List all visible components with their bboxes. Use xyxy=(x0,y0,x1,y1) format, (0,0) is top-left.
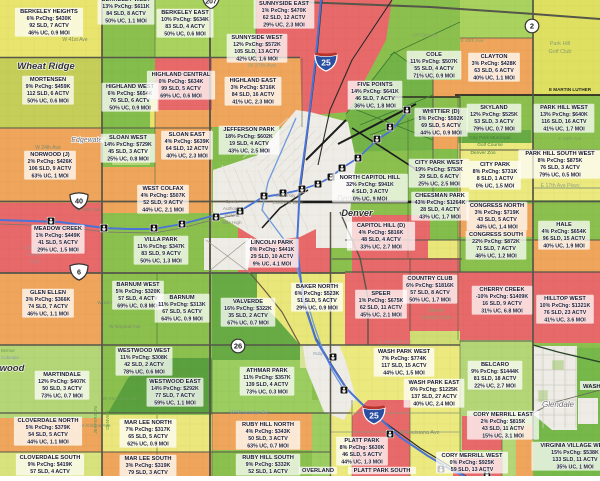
svg-text:12% PxChg: $525K: 12% PxChg: $525K xyxy=(470,112,518,118)
svg-text:76 SLD, 6 ACTV: 76 SLD, 6 ACTV xyxy=(110,98,150,104)
svg-text:52 SLD, 9 ACTV: 52 SLD, 9 ACTV xyxy=(143,200,183,206)
svg-text:CITY PARK WEST: CITY PARK WEST xyxy=(415,160,464,166)
svg-text:63% UC, 0.7 MOI: 63% UC, 0.7 MOI xyxy=(247,443,289,449)
svg-text:43% UC, 2.5 MOI: 43% UC, 2.5 MOI xyxy=(228,148,270,154)
svg-text:40% UC, 1.1 MOI: 40% UC, 1.1 MOI xyxy=(473,75,515,81)
svg-text:35% UC, 1 MOI: 35% UC, 1 MOI xyxy=(556,464,594,470)
svg-text:MORTENSEN: MORTENSEN xyxy=(30,77,66,83)
svg-text:RUBY HILL SOUTH: RUBY HILL SOUTH xyxy=(242,455,294,461)
svg-text:BERKELEY EAST: BERKELEY EAST xyxy=(161,10,209,16)
svg-text:22% PxChg: $872K: 22% PxChg: $872K xyxy=(472,239,520,245)
svg-text:5% PxChg: $379K: 5% PxChg: $379K xyxy=(26,425,71,431)
svg-text:44% UC, 1.5 MOI: 44% UC, 1.5 MOI xyxy=(383,370,425,376)
svg-text:W 24th Ave: W 24th Ave xyxy=(35,145,61,151)
svg-text:SKYLAND: SKYLAND xyxy=(480,105,508,111)
svg-text:13% PxChg: $611K: 13% PxChg: $611K xyxy=(102,4,150,10)
svg-text:7% PxChg: $317K: 7% PxChg: $317K xyxy=(126,427,171,433)
svg-text:43% PxChg: $1264K: 43% PxChg: $1264K xyxy=(415,200,466,206)
svg-text:8% PxChg: $630K: 8% PxChg: $630K xyxy=(340,445,385,451)
svg-text:6% PxChg: $430K: 6% PxChg: $430K xyxy=(27,16,72,22)
svg-text:Glendale: Glendale xyxy=(542,400,575,409)
svg-text:55 SLD, 4 ACTV: 55 SLD, 4 ACTV xyxy=(414,66,454,72)
svg-text:Field at: Field at xyxy=(224,213,240,218)
svg-text:29% UC, 1.5 MOI: 29% UC, 1.5 MOI xyxy=(37,247,79,253)
svg-text:69% UC, 0.8 MOI: 69% UC, 0.8 MOI xyxy=(117,303,159,309)
svg-text:62% UC, 0.9 MOI: 62% UC, 0.9 MOI xyxy=(127,441,169,447)
svg-text:Wheat Ridge: Wheat Ridge xyxy=(17,61,75,72)
svg-text:Belmar: Belmar xyxy=(1,348,15,353)
svg-text:46% UC, 0.9 MOI: 46% UC, 0.9 MOI xyxy=(28,30,70,36)
svg-text:WESTWOOD EAST: WESTWOOD EAST xyxy=(149,379,201,385)
svg-text:11% PxChg: $313K: 11% PxChg: $313K xyxy=(158,302,206,308)
svg-text:40: 40 xyxy=(75,197,83,206)
svg-text:OVERLAND: OVERLAND xyxy=(302,468,334,474)
svg-text:81 SLD, 18 ACTV: 81 SLD, 18 ACTV xyxy=(474,376,517,382)
svg-text:74 SLD, 7 ACTV: 74 SLD, 7 ACTV xyxy=(28,304,68,310)
svg-text:3% PxChg: $716K: 3% PxChg: $716K xyxy=(231,85,276,91)
svg-text:11% PxChg: $507K: 11% PxChg: $507K xyxy=(410,59,458,65)
svg-text:25% UC, 0.8 MOI: 25% UC, 0.8 MOI xyxy=(107,156,149,162)
svg-text:62 SLD, 11 ACTV: 62 SLD, 11 ACTV xyxy=(360,305,403,311)
svg-text:WASH: WASH xyxy=(583,384,600,390)
svg-text:35 SLD, 2 ACTV: 35 SLD, 2 ACTV xyxy=(228,313,268,319)
svg-text:106 SLD, 9 ACTV: 106 SLD, 9 ACTV xyxy=(29,166,72,172)
svg-text:46 SLD, 5 ACTV: 46 SLD, 5 ACTV xyxy=(342,452,382,458)
svg-text:71% UC, 0.9 MOI: 71% UC, 0.9 MOI xyxy=(413,73,455,79)
svg-text:57 SLD, 4 ACTV: 57 SLD, 4 ACTV xyxy=(30,469,70,475)
svg-text:207: 207 xyxy=(205,0,217,5)
svg-text:VALVERDE: VALVERDE xyxy=(233,299,263,305)
svg-text:44% UC, 1.1 MOI: 44% UC, 1.1 MOI xyxy=(27,439,69,445)
svg-text:9% PxChg: $419K: 9% PxChg: $419K xyxy=(28,462,73,468)
svg-text:44% UC, 1.3 MOI: 44% UC, 1.3 MOI xyxy=(341,459,383,465)
svg-text:50 SLD, 3 ACTV: 50 SLD, 3 ACTV xyxy=(248,436,288,442)
svg-text:CHEESMAN PARK: CHEESMAN PARK xyxy=(415,193,466,199)
svg-text:40% UC, 2.3 MOI: 40% UC, 2.3 MOI xyxy=(166,153,208,159)
svg-text:36% UC, 1.8 MOI: 36% UC, 1.8 MOI xyxy=(354,103,396,109)
svg-text:79% UC, 0.7 MOI: 79% UC, 0.7 MOI xyxy=(473,126,515,132)
svg-text:CAPITOL HILL (D): CAPITOL HILL (D) xyxy=(357,223,405,229)
svg-text:CLAYTON: CLAYTON xyxy=(481,54,508,60)
svg-text:GLEN ELLEN: GLEN ELLEN xyxy=(30,290,66,296)
svg-text:MAR LEE SOUTH: MAR LEE SOUTH xyxy=(124,456,171,462)
svg-text:14% PxChg: $292K: 14% PxChg: $292K xyxy=(151,386,199,392)
svg-text:116 SLD, 16 ACTV: 116 SLD, 16 ACTV xyxy=(541,119,587,125)
svg-text:BARNUM: BARNUM xyxy=(169,295,195,301)
svg-text:-10% PxChg: $1409K: -10% PxChg: $1409K xyxy=(476,294,529,300)
svg-text:50% UC, 0.9 MOI: 50% UC, 0.9 MOI xyxy=(109,105,151,111)
svg-text:Country Club: Country Club xyxy=(421,315,450,321)
svg-text:71 SLD, 7 ACTV: 71 SLD, 7 ACTV xyxy=(476,246,516,252)
svg-text:64% UC, 0.9 MOI: 64% UC, 0.9 MOI xyxy=(161,316,203,322)
svg-text:69% UC, 0.6 MOI: 69% UC, 0.6 MOI xyxy=(160,93,202,99)
svg-text:77 SLD, 7 ACTV: 77 SLD, 7 ACTV xyxy=(155,393,195,399)
svg-text:137 SLD, 27 ACTV: 137 SLD, 27 ACTV xyxy=(411,394,457,400)
svg-text:HALE: HALE xyxy=(556,222,572,228)
svg-text:45% UC, 2.1 MOI: 45% UC, 2.1 MOI xyxy=(360,312,402,318)
svg-text:5% PxChg: $320K: 5% PxChg: $320K xyxy=(116,289,161,295)
svg-text:wood: wood xyxy=(0,363,25,374)
svg-text:Denver Zoo: Denver Zoo xyxy=(470,150,495,156)
svg-text:52 SLD, 1 ACTV: 52 SLD, 1 ACTV xyxy=(248,469,288,475)
svg-text:5% PxChg: $592K: 5% PxChg: $592K xyxy=(419,116,464,122)
svg-text:3% PxChg: $428K: 3% PxChg: $428K xyxy=(472,61,517,67)
svg-text:CITY PARK: CITY PARK xyxy=(480,162,511,168)
svg-text:Colorado: Colorado xyxy=(1,355,19,360)
svg-text:WESTWOOD WEST: WESTWOOD WEST xyxy=(118,348,171,354)
svg-text:CORY MERRILL WEST: CORY MERRILL WEST xyxy=(442,453,503,459)
svg-text:9% UC, 4.1 MOI: 9% UC, 4.1 MOI xyxy=(253,261,292,267)
svg-text:29 SLD, 6 ACTV: 29 SLD, 6 ACTV xyxy=(419,174,459,180)
svg-text:BERKELEY WEST: BERKELEY WEST xyxy=(102,0,151,3)
svg-text:Golf Course: Golf Course xyxy=(477,142,503,148)
svg-text:8 SLD, 1 ACTV: 8 SLD, 1 ACTV xyxy=(477,176,514,182)
svg-text:2: 2 xyxy=(530,22,534,31)
svg-text:69 SLD, 5 ACTV: 69 SLD, 5 ACTV xyxy=(421,123,461,129)
svg-text:PARK HILL SOUTH WEST: PARK HILL SOUTH WEST xyxy=(525,151,595,157)
svg-text:COLE: COLE xyxy=(426,52,442,58)
svg-text:31% UC, 6.8 MOI: 31% UC, 6.8 MOI xyxy=(481,308,523,314)
svg-text:FIVE POINTS: FIVE POINTS xyxy=(357,82,393,88)
svg-text:46% UC, 1.1 MOI: 46% UC, 1.1 MOI xyxy=(27,311,69,317)
svg-text:1% PxChg: $470K: 1% PxChg: $470K xyxy=(262,8,307,14)
svg-text:VIRGINIA VILLAGE WEST: VIRGINIA VILLAGE WEST xyxy=(540,443,600,449)
svg-text:4% PxChg: $654K: 4% PxChg: $654K xyxy=(542,229,587,235)
svg-text:CLOVERDALE NORTH: CLOVERDALE NORTH xyxy=(18,418,79,424)
svg-text:14% PxChg: $729K: 14% PxChg: $729K xyxy=(104,142,152,148)
svg-text:HIGHLAND CENTRAL: HIGHLAND CENTRAL xyxy=(152,72,211,78)
svg-text:RUBY HILL NORTH: RUBY HILL NORTH xyxy=(242,422,294,428)
svg-text:48 SLD, 4 ACTV: 48 SLD, 4 ACTV xyxy=(361,237,401,243)
svg-text:8% PxChg: $731K: 8% PxChg: $731K xyxy=(473,169,518,175)
svg-text:40% UC, 1.9 MOI: 40% UC, 1.9 MOI xyxy=(543,243,585,249)
svg-text:96 SLD, 15 ACTV: 96 SLD, 15 ACTV xyxy=(543,236,586,242)
svg-text:45 SLD, 3 ACTV: 45 SLD, 3 ACTV xyxy=(108,149,148,155)
svg-text:WEST COLFAX: WEST COLFAX xyxy=(142,186,183,192)
svg-text:92 SLD, 7 ACTV: 92 SLD, 7 ACTV xyxy=(29,23,69,29)
svg-text:3% PxChg: $719K: 3% PxChg: $719K xyxy=(475,210,520,216)
svg-text:42 SLD, 2 ACTV: 42 SLD, 2 ACTV xyxy=(124,362,164,368)
svg-text:Authority: Authority xyxy=(223,206,242,211)
svg-text:W 41st Ave: W 41st Ave xyxy=(62,37,87,43)
svg-text:11% PxChg: $357K: 11% PxChg: $357K xyxy=(243,375,291,381)
svg-text:BERKELEY HEIGHTS: BERKELEY HEIGHTS xyxy=(20,9,78,15)
svg-text:79 SLD, 3 ACTV: 79 SLD, 3 ACTV xyxy=(128,470,168,476)
svg-text:33% UC, 2.7 MOI: 33% UC, 2.7 MOI xyxy=(360,244,402,250)
svg-text:SLOAN WEST: SLOAN WEST xyxy=(109,135,147,141)
svg-text:PARK HILL WEST: PARK HILL WEST xyxy=(540,105,588,111)
svg-text:51 SLD, 5 ACTV: 51 SLD, 5 ACTV xyxy=(297,298,337,304)
svg-text:105 SLD, 13 ACTV: 105 SLD, 13 ACTV xyxy=(234,49,280,55)
svg-text:57 SLD, 4 ACTV: 57 SLD, 4 ACTV xyxy=(118,296,158,302)
svg-text:54 SLD, 5 ACTV: 54 SLD, 5 ACTV xyxy=(28,432,68,438)
svg-text:10% PxChg: $1321K: 10% PxChg: $1321K xyxy=(540,303,591,309)
svg-text:HILLTOP WEST: HILLTOP WEST xyxy=(544,296,586,302)
svg-text:PLATT PARK SOUTH: PLATT PARK SOUTH xyxy=(354,468,411,474)
svg-text:29% UC, 0.9 MOI: 29% UC, 0.9 MOI xyxy=(296,305,338,311)
svg-text:WHITTIER (D): WHITTIER (D) xyxy=(423,109,460,115)
svg-text:43 SLD, 11 ACTV: 43 SLD, 11 ACTV xyxy=(482,426,525,432)
svg-text:E 25th Ave: E 25th Ave xyxy=(558,136,581,142)
svg-text:3% PxChg: $319K: 3% PxChg: $319K xyxy=(126,463,171,469)
svg-text:PLATT PARK: PLATT PARK xyxy=(344,438,380,444)
svg-text:E 17th Ave Pkwy: E 17th Ave Pkwy xyxy=(541,183,580,189)
svg-text:29% UC, 2.3 MOI: 29% UC, 2.3 MOI xyxy=(263,22,305,28)
svg-text:MARTINDALE: MARTINDALE xyxy=(43,372,81,378)
svg-text:44% UC, 2.1 MOI: 44% UC, 2.1 MOI xyxy=(142,207,184,213)
svg-text:HIGHLAND EAST: HIGHLAND EAST xyxy=(230,78,277,84)
svg-text:SLOAN EAST: SLOAN EAST xyxy=(169,132,206,138)
svg-text:50 SLD, 3 ACTV: 50 SLD, 3 ACTV xyxy=(42,386,82,392)
svg-text:SUNNYSIDE EAST: SUNNYSIDE EAST xyxy=(259,1,309,7)
svg-text:2% PxChg: $815K: 2% PxChg: $815K xyxy=(481,419,526,425)
svg-text:VILLA PARK: VILLA PARK xyxy=(144,237,178,243)
svg-text:16% PxChg: $322K: 16% PxChg: $322K xyxy=(224,306,272,312)
svg-text:CONGRESS NORTH: CONGRESS NORTH xyxy=(470,203,524,209)
svg-text:78% UC, 0.6 MOI: 78% UC, 0.6 MOI xyxy=(123,369,165,375)
svg-text:50% UC, 0.6 MOI: 50% UC, 0.6 MOI xyxy=(27,98,69,104)
svg-text:ATHMAR PARK: ATHMAR PARK xyxy=(246,368,288,374)
svg-text:7% PxChg: $774K: 7% PxChg: $774K xyxy=(382,356,427,362)
svg-text:JEFFERSON: JEFFERSON xyxy=(93,406,98,433)
svg-text:73% UC, 0.3 MOI: 73% UC, 0.3 MOI xyxy=(246,389,288,395)
svg-text:15% UC, 3.1 MOI: 15% UC, 3.1 MOI xyxy=(482,433,524,439)
svg-text:0% UC, 9 MOI: 0% UC, 9 MOI xyxy=(353,196,388,202)
svg-text:Ruby: Ruby xyxy=(313,351,324,356)
svg-text:12% PxChg: $572K: 12% PxChg: $572K xyxy=(233,42,281,48)
svg-text:10% PxChg: $634K: 10% PxChg: $634K xyxy=(161,17,209,23)
svg-text:9% PxChg: $332K: 9% PxChg: $332K xyxy=(246,462,291,468)
svg-text:COUNTRY CLUB: COUNTRY CLUB xyxy=(407,276,452,282)
svg-text:14% PxChg: $641K: 14% PxChg: $641K xyxy=(351,89,399,95)
svg-text:University of: University of xyxy=(275,193,301,198)
svg-text:63 SLD, 6 ACTV: 63 SLD, 6 ACTV xyxy=(474,68,514,74)
svg-text:3% PxChg: $366K: 3% PxChg: $366K xyxy=(26,297,71,303)
svg-text:63% UC, 1 MOI: 63% UC, 1 MOI xyxy=(31,173,69,179)
svg-text:6% PxChg: $523K: 6% PxChg: $523K xyxy=(295,291,340,297)
svg-text:WASH PARK WEST: WASH PARK WEST xyxy=(378,349,431,355)
svg-text:4% PxChg: $507K: 4% PxChg: $507K xyxy=(141,193,186,199)
svg-text:41% UC, 3.6 MOI: 41% UC, 3.6 MOI xyxy=(544,317,586,323)
svg-text:BELCARO: BELCARO xyxy=(481,362,510,368)
svg-text:CONGRESS SOUTH: CONGRESS SOUTH xyxy=(469,232,523,238)
svg-text:84 SLD, 16 ACTV: 84 SLD, 16 ACTV xyxy=(232,92,275,98)
svg-text:9% PxChg: $459K: 9% PxChg: $459K xyxy=(26,84,71,90)
svg-text:67 SLD, 5 ACTV: 67 SLD, 5 ACTV xyxy=(162,309,202,315)
svg-text:0% UC, 1.5 MOI: 0% UC, 1.5 MOI xyxy=(476,183,515,189)
svg-text:112 SLD, 6 ACTV: 112 SLD, 6 ACTV xyxy=(27,91,70,97)
svg-text:LINCOLN PARK: LINCOLN PARK xyxy=(251,240,294,246)
svg-text:29 SLD, 10 ACTV: 29 SLD, 10 ACTV xyxy=(251,254,294,260)
svg-text:BAKER NORTH: BAKER NORTH xyxy=(296,284,338,290)
svg-text:73% UC, 0.7 MOI: 73% UC, 0.7 MOI xyxy=(41,393,83,399)
svg-text:40% UC, 2.4 MOI: 40% UC, 2.4 MOI xyxy=(413,401,455,407)
svg-text:64 SLD, 12 ACTV: 64 SLD, 12 ACTV xyxy=(166,146,209,152)
svg-text:Sports: Sports xyxy=(225,199,239,204)
svg-text:JEFFERSON PARK: JEFFERSON PARK xyxy=(223,127,275,133)
svg-text:1% PxChg: $675K: 1% PxChg: $675K xyxy=(359,298,404,304)
svg-text:83 SLD, 9 ACTV: 83 SLD, 9 ACTV xyxy=(141,251,181,257)
svg-text:133 SLD, 11 ACTV: 133 SLD, 11 ACTV xyxy=(552,457,598,463)
svg-text:4% PxChg: $816K: 4% PxChg: $816K xyxy=(359,230,404,236)
svg-text:26: 26 xyxy=(234,342,242,351)
svg-text:Club: Club xyxy=(30,259,41,265)
svg-text:44% UC, 1.4 MOI: 44% UC, 1.4 MOI xyxy=(476,224,518,230)
svg-text:NORWOOD (J): NORWOOD (J) xyxy=(30,152,69,158)
svg-text:4% PxChg: $343K: 4% PxChg: $343K xyxy=(246,429,291,435)
svg-text:79% UC, 0.5 MOI: 79% UC, 0.5 MOI xyxy=(539,172,581,178)
svg-text:6% PxChg: $1225K: 6% PxChg: $1225K xyxy=(410,387,458,393)
svg-text:43% UC, 1.7 MOI: 43% UC, 1.7 MOI xyxy=(419,214,461,220)
svg-text:65 SLD, 5 ACTV: 65 SLD, 5 ACTV xyxy=(128,434,168,440)
svg-text:WASH PARK EAST: WASH PARK EAST xyxy=(408,380,460,386)
svg-text:Denver: Denver xyxy=(341,208,373,218)
svg-text:50% UC, 1.7 MOI: 50% UC, 1.7 MOI xyxy=(409,297,451,303)
svg-text:11% PxChg: $347K: 11% PxChg: $347K xyxy=(137,244,185,250)
svg-text:MAR LEE NORTH: MAR LEE NORTH xyxy=(124,420,171,426)
svg-text:16 SLD, 9 ACTV: 16 SLD, 9 ACTV xyxy=(482,301,522,307)
svg-text:NORTH CAPITOL HILL: NORTH CAPITOL HILL xyxy=(340,175,401,181)
svg-text:83 SLD, 4 ACTV: 83 SLD, 4 ACTV xyxy=(165,24,205,30)
svg-text:50% UC, 0.6 MOI: 50% UC, 0.6 MOI xyxy=(164,31,206,37)
svg-text:UP-Denver: UP-Denver xyxy=(413,33,438,39)
svg-text:50% UC, 1.1 MOI: 50% UC, 1.1 MOI xyxy=(105,18,147,24)
svg-text:59 SLD, 13 ACTV: 59 SLD, 13 ACTV xyxy=(451,467,494,473)
svg-text:0% PxChg: $925K: 0% PxChg: $925K xyxy=(450,460,495,466)
svg-text:62 SLD, 12 ACTV: 62 SLD, 12 ACTV xyxy=(263,15,306,21)
svg-text:4% PxChg: $639K: 4% PxChg: $639K xyxy=(165,139,210,145)
svg-text:W Kentucky Ave: W Kentucky Ave xyxy=(103,396,138,402)
svg-text:41% UC, 2.3 MOI: 41% UC, 2.3 MOI xyxy=(232,99,274,105)
svg-text:11% PxChg: $308K: 11% PxChg: $308K xyxy=(120,355,168,361)
svg-text:41% UC, 1.7 MOI: 41% UC, 1.7 MOI xyxy=(543,126,585,132)
svg-text:9% PxChg: $1444K: 9% PxChg: $1444K xyxy=(471,369,519,375)
svg-text:41 SLD, 5 ACTV: 41 SLD, 5 ACTV xyxy=(38,240,78,246)
svg-text:13% PxChg: $640K: 13% PxChg: $640K xyxy=(540,112,588,118)
svg-text:0% PxChg: $441K: 0% PxChg: $441K xyxy=(250,247,295,253)
svg-text:50% UC, 1.3 MOI: 50% UC, 1.3 MOI xyxy=(140,258,182,264)
svg-text:76 SLD, 23 ACTV: 76 SLD, 23 ACTV xyxy=(544,310,587,316)
svg-text:19% PxChg: $753K: 19% PxChg: $753K xyxy=(415,167,463,173)
svg-text:Mile High: Mile High xyxy=(222,220,242,225)
svg-text:W 37th Ave: W 37th Ave xyxy=(248,63,276,69)
svg-text:CLOVERDALE SOUTH: CLOVERDALE SOUTH xyxy=(20,455,81,461)
svg-text:SPEER: SPEER xyxy=(371,291,390,297)
svg-text:6: 6 xyxy=(77,268,81,277)
svg-text:59% UC, 1.1 MOI: 59% UC, 1.1 MOI xyxy=(154,400,196,406)
svg-text:4 SLD, 3 ACTV: 4 SLD, 3 ACTV xyxy=(352,189,389,195)
svg-text:MEADOW CREEK: MEADOW CREEK xyxy=(34,226,83,232)
svg-text:6% PxChg: $1816K: 6% PxChg: $1816K xyxy=(406,283,454,289)
svg-text:Denver: Denver xyxy=(428,308,444,314)
svg-text:28 SLD, 4 ACTV: 28 SLD, 4 ACTV xyxy=(420,207,460,213)
svg-text:CORY MERRILL EAST: CORY MERRILL EAST xyxy=(473,412,533,418)
svg-text:67% UC, 0.7 MOI: 67% UC, 0.7 MOI xyxy=(227,320,269,326)
svg-text:1% PxChg: $449K: 1% PxChg: $449K xyxy=(36,233,81,239)
svg-text:57 SLD, 8 ACTV: 57 SLD, 8 ACTV xyxy=(410,290,450,296)
svg-text:22% UC, 2.7 MOI: 22% UC, 2.7 MOI xyxy=(474,383,516,389)
svg-text:25: 25 xyxy=(321,58,331,68)
svg-text:2% PxChg: $426K: 2% PxChg: $426K xyxy=(28,159,73,165)
svg-text:BARNUM WEST: BARNUM WEST xyxy=(116,282,160,288)
svg-text:139 SLD, 4 ACTV: 139 SLD, 4 ACTV xyxy=(246,382,289,388)
svg-text:46% UC, 1.2 MOI: 46% UC, 1.2 MOI xyxy=(475,253,517,259)
svg-text:32% PxChg: $941K: 32% PxChg: $941K xyxy=(346,182,394,188)
svg-text:53 SLD, 3 ACTV: 53 SLD, 3 ACTV xyxy=(474,119,514,125)
svg-text:18% PxChg: $602K: 18% PxChg: $602K xyxy=(225,134,273,140)
svg-text:46 SLD, 7 ACTV: 46 SLD, 7 ACTV xyxy=(355,96,395,102)
svg-text:Edgewater: Edgewater xyxy=(71,137,105,144)
svg-text:E MARTIN LUTHER: E MARTIN LUTHER xyxy=(549,87,592,92)
svg-text:42% UC, 1.6 MOI: 42% UC, 1.6 MOI xyxy=(236,56,278,62)
svg-text:CHERRY CREEK: CHERRY CREEK xyxy=(479,287,525,293)
svg-text:25% UC, 2.5 MOI: 25% UC, 2.5 MOI xyxy=(418,181,460,187)
svg-text:DENVER: DENVER xyxy=(105,410,110,430)
svg-text:76 SLD, 3 ACTV: 76 SLD, 3 ACTV xyxy=(540,165,580,171)
svg-text:SUNNYSIDE WEST: SUNNYSIDE WEST xyxy=(231,35,283,41)
svg-text:E Alameda Ave: E Alameda Ave xyxy=(379,339,412,345)
svg-text:43 SLD, 5 ACTV: 43 SLD, 5 ACTV xyxy=(477,217,517,223)
svg-text:6% PxChg: $654K: 6% PxChg: $654K xyxy=(108,91,153,97)
svg-text:8% PxChg: $875K: 8% PxChg: $875K xyxy=(538,158,583,164)
svg-text:12% PxChg: $407K: 12% PxChg: $407K xyxy=(38,379,86,385)
svg-text:25: 25 xyxy=(369,411,379,421)
svg-text:19 SLD, 4 ACTV: 19 SLD, 4 ACTV xyxy=(229,141,269,147)
svg-text:0% PxChg: $634K: 0% PxChg: $634K xyxy=(159,79,204,85)
svg-text:44% UC, 0.9 MOI: 44% UC, 0.9 MOI xyxy=(420,130,462,136)
svg-text:117 SLD, 15 ACTV: 117 SLD, 15 ACTV xyxy=(381,363,427,369)
svg-text:99 SLD, 5 ACTV: 99 SLD, 5 ACTV xyxy=(161,86,201,92)
svg-text:84 SLD, 8 ACTV: 84 SLD, 8 ACTV xyxy=(106,11,146,17)
svg-text:15% PxChg: $538K: 15% PxChg: $538K xyxy=(551,450,599,456)
